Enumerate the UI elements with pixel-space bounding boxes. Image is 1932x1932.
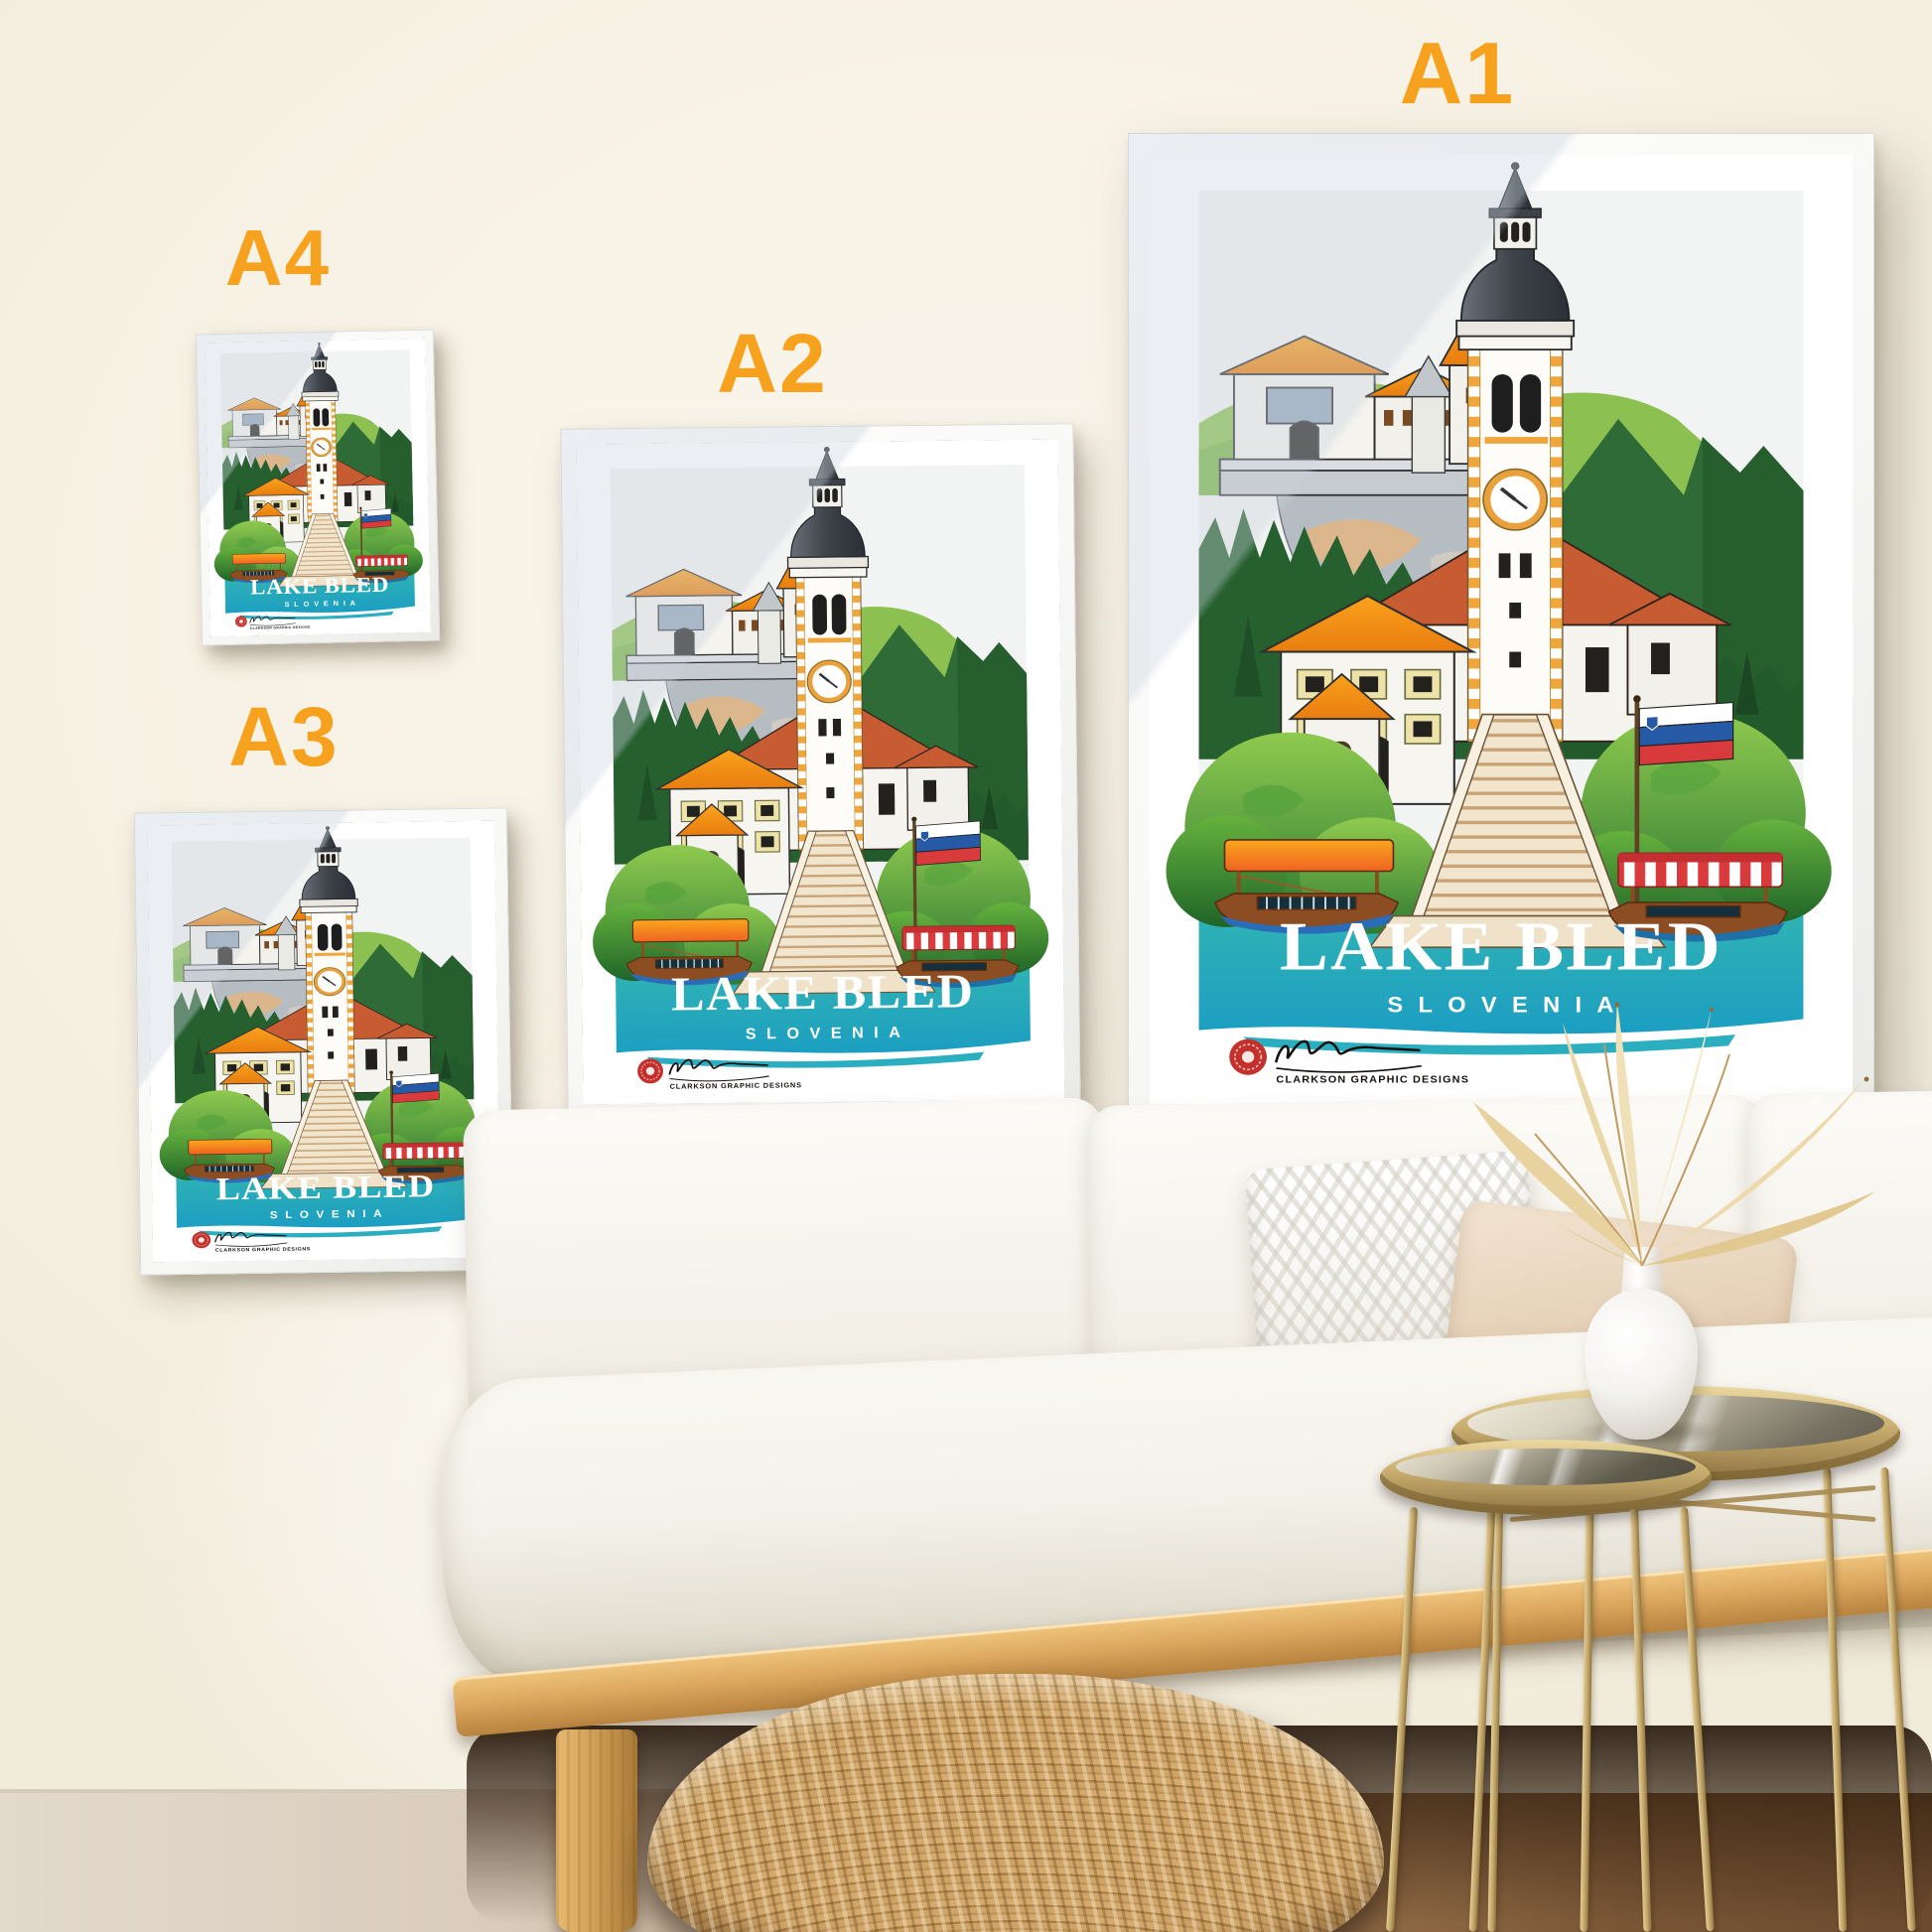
poster-frame-a2: LAKE BLED SLOVENIA CLARKSON GRAPHIC DESI… <box>560 423 1080 1120</box>
size-label-a4: A4 <box>225 218 331 298</box>
lake-bled-artwork: LAKE BLED SLOVENIA CLARKSON GRAPHIC DESI… <box>1150 155 1853 1104</box>
poster-paper-a3: LAKE BLED SLOVENIA CLARKSON GRAPHIC DESI… <box>147 821 500 1263</box>
poster-frame-a3: LAKE BLED SLOVENIA CLARKSON GRAPHIC DESI… <box>134 807 513 1275</box>
room-scene: A4 A3 A2 A1 <box>0 0 1932 1932</box>
poster-title: LAKE BLED <box>1280 908 1723 985</box>
lake-bled-artwork: LAKE BLED SLOVENIA CLARKSON GRAPHIC DESI… <box>147 821 500 1263</box>
poster-title: LAKE BLED <box>250 572 389 599</box>
poster-subtitle: SLOVENIA <box>284 599 359 609</box>
poster-title: LAKE BLED <box>671 964 975 1021</box>
lake-bled-artwork: LAKE BLED SLOVENIA CLARKSON GRAPHIC DESI… <box>577 439 1065 1104</box>
poster-frame-a1: LAKE BLED SLOVENIA CLARKSON GRAPHIC DESI… <box>1128 133 1874 1126</box>
size-label-a2: A2 <box>717 322 827 405</box>
glass-table-surface <box>1396 1449 1696 1485</box>
poster-subtitle: SLOVENIA <box>270 1208 389 1221</box>
poster-paper-a4: LAKE BLED SLOVENIA CLARKSON GRAPHIC DESI… <box>205 339 431 637</box>
dried-plant <box>1414 983 1880 1281</box>
poster-paper-a1: LAKE BLED SLOVENIA CLARKSON GRAPHIC DESI… <box>1150 155 1853 1104</box>
poster-paper-a2: LAKE BLED SLOVENIA CLARKSON GRAPHIC DESI… <box>577 439 1065 1104</box>
brand-name: CLARKSON GRAPHIC DESIGNS <box>670 1080 802 1090</box>
sofa-front-leg <box>556 1729 637 1932</box>
size-label-a1: A1 <box>1400 30 1516 117</box>
lake-bled-artwork: LAKE BLED SLOVENIA CLARKSON GRAPHIC DESI… <box>205 339 431 637</box>
poster-title: LAKE BLED <box>216 1170 436 1207</box>
poster-subtitle: SLOVENIA <box>746 1025 911 1042</box>
poster-frame-a4: LAKE BLED SLOVENIA CLARKSON GRAPHIC DESI… <box>196 330 441 646</box>
size-label-a3: A3 <box>228 695 339 778</box>
nesting-table-small <box>1380 1440 1712 1515</box>
